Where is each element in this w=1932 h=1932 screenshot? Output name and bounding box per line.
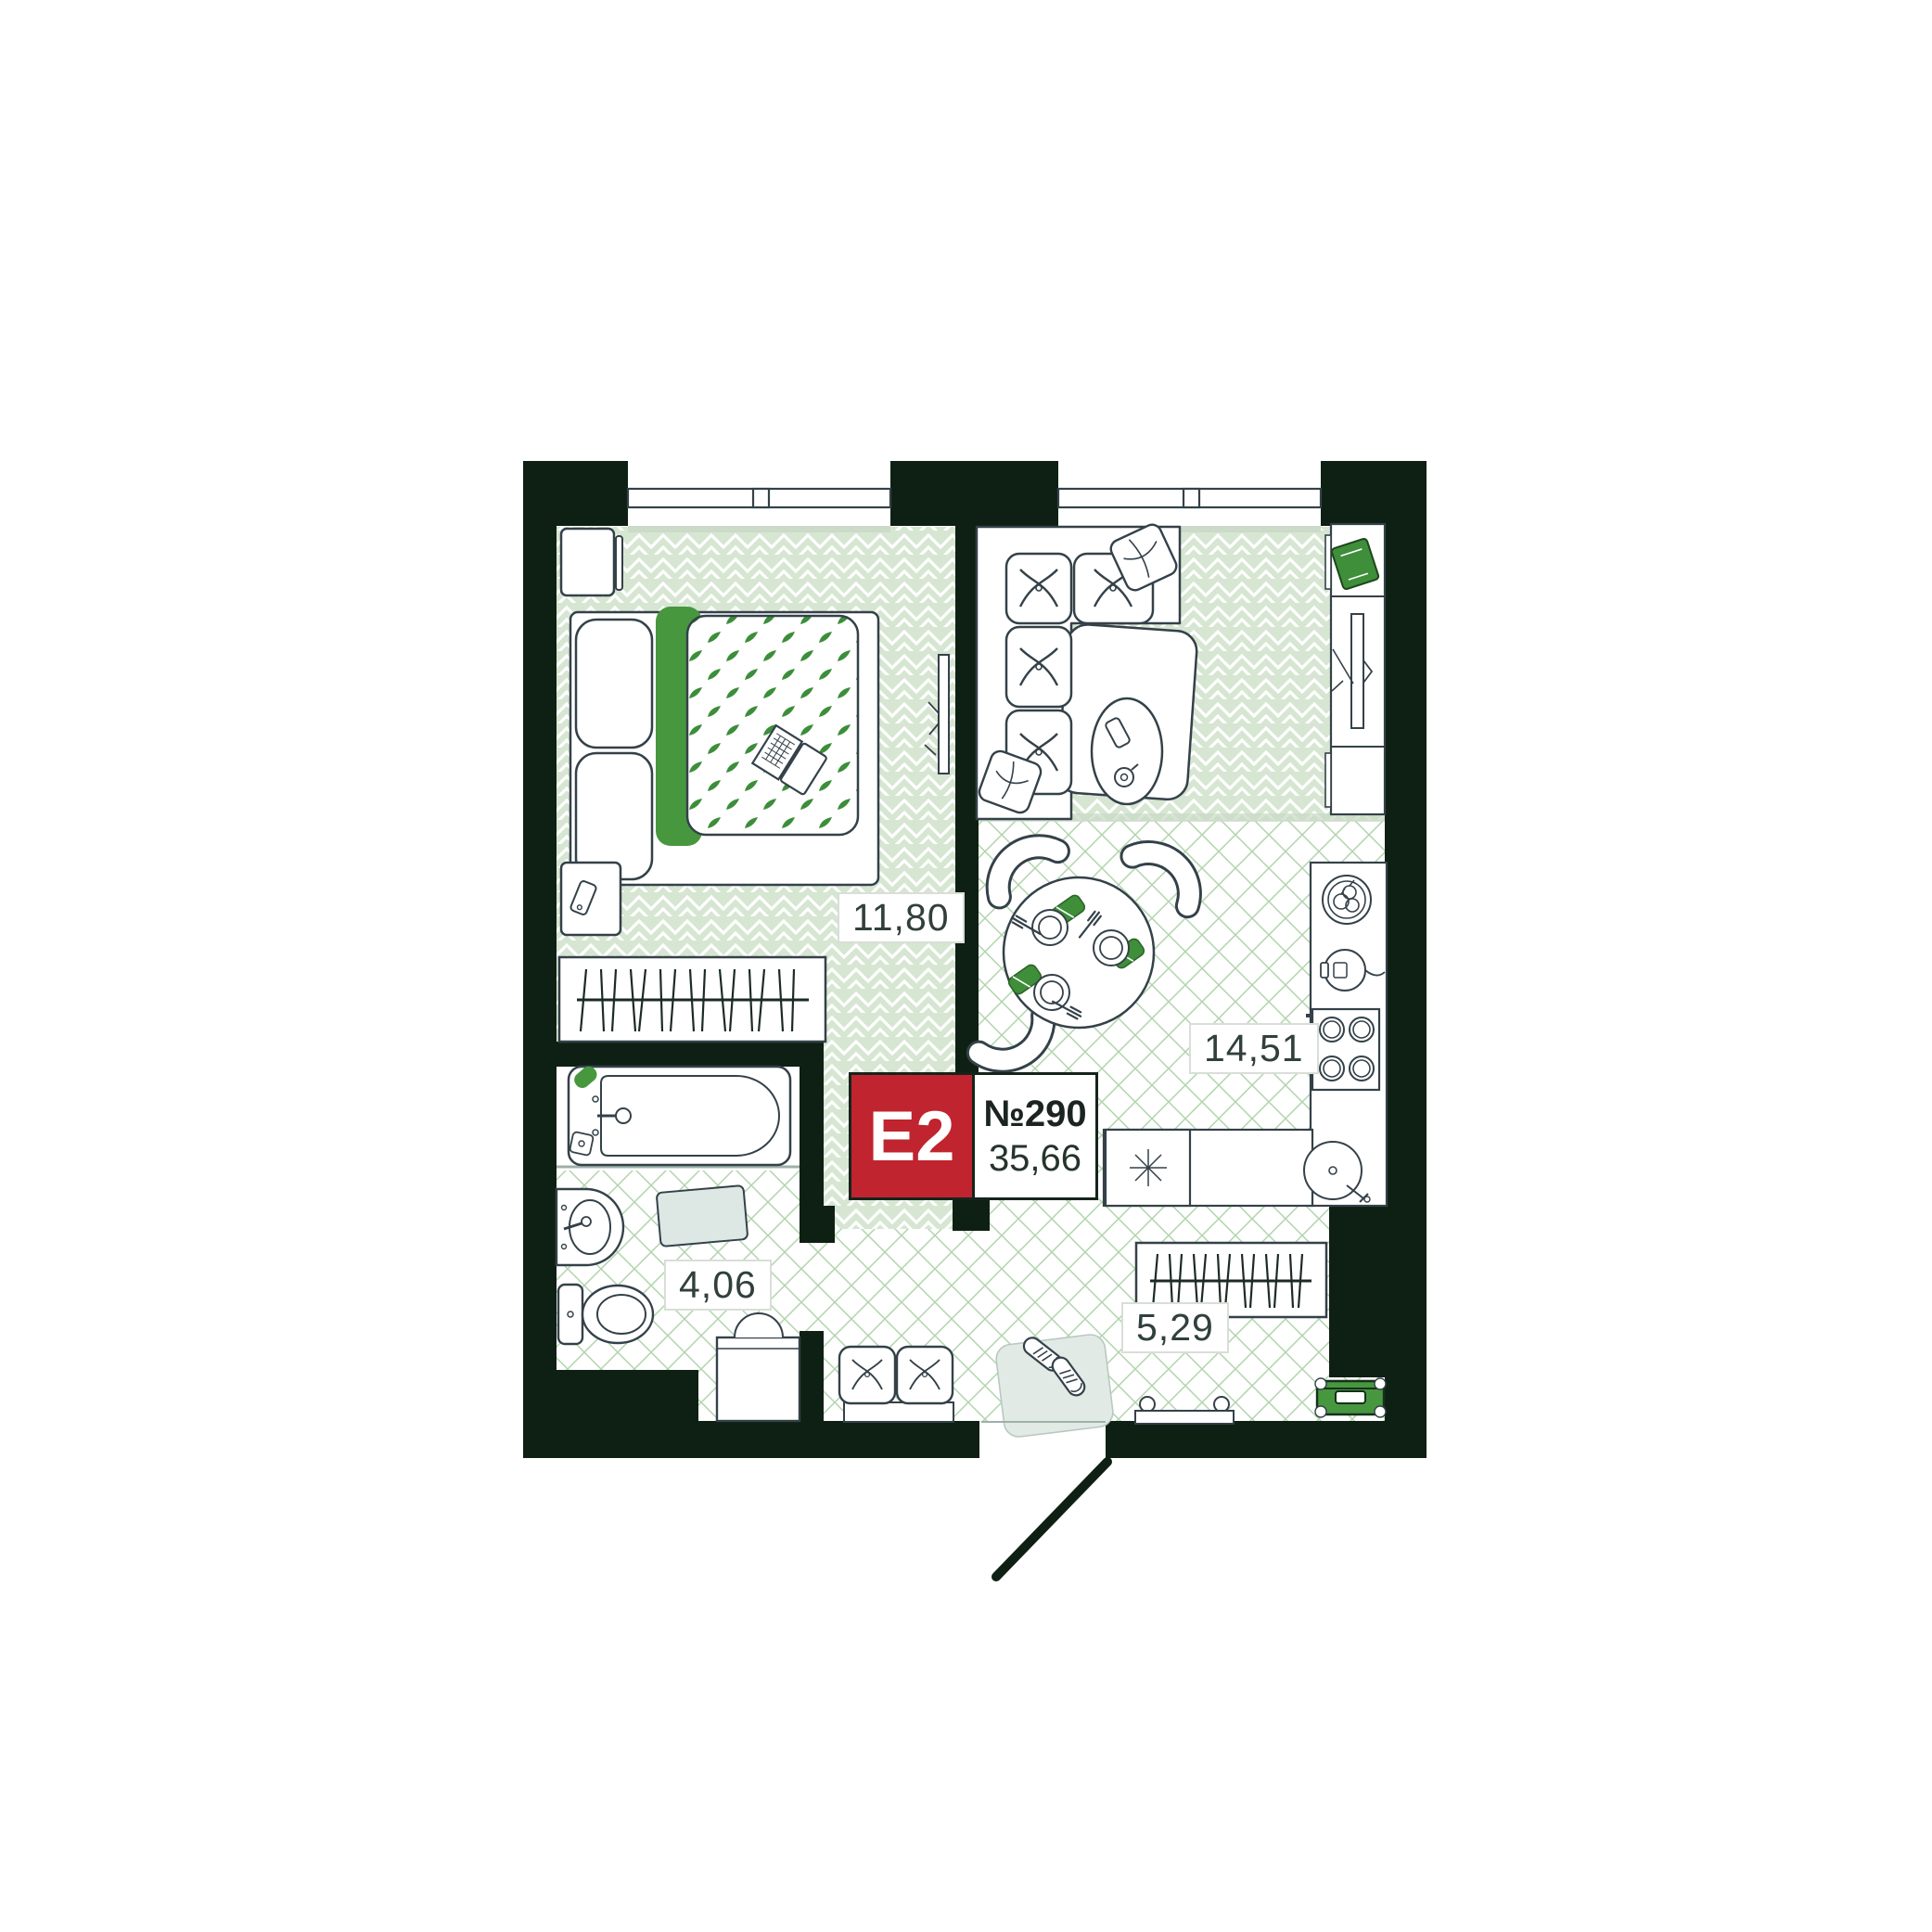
bedroom-wardrobe	[559, 957, 825, 1042]
console-handle	[1325, 535, 1331, 589]
bathtub	[569, 1064, 790, 1165]
fruit-plate	[1323, 876, 1371, 924]
entrance-door-swing	[996, 1462, 1107, 1577]
bed	[570, 607, 878, 885]
living-window-mullion	[1184, 489, 1199, 507]
washbasin	[557, 1189, 623, 1265]
dishwasher	[1106, 1130, 1190, 1206]
unit-total-area: 35,66	[989, 1136, 1081, 1181]
unit-badge: E2 №290 35,66	[849, 1072, 1098, 1200]
bath-mat	[657, 1185, 748, 1247]
leaf-blanket	[687, 616, 858, 835]
floor-plan-page: 11,80 14,51 4,06 5,29 E2 №290 35,66	[0, 0, 1932, 1932]
bedroom-window-shadow	[628, 526, 890, 532]
toilet	[558, 1285, 653, 1344]
unit-number: №290	[983, 1092, 1086, 1136]
floor-plan-canvas	[0, 0, 1932, 1932]
nightstand	[561, 529, 614, 595]
kitchen-living-area-label: 14,51	[1189, 1023, 1319, 1074]
wall-right-lower-block	[1329, 1206, 1427, 1377]
tv-console	[1325, 524, 1385, 814]
wall-bathroom-bottom	[523, 1370, 698, 1424]
unit-info: №290 35,66	[972, 1075, 1095, 1197]
bath-accessory	[569, 1132, 594, 1156]
console-handle	[1325, 753, 1331, 807]
hallway-area-label: 5,29	[1121, 1302, 1229, 1353]
corner-sofa	[977, 521, 1198, 819]
plate	[1034, 975, 1069, 1010]
bedroom-area-label: 11,80	[838, 892, 965, 943]
pillow	[576, 620, 652, 748]
unit-type-badge: E2	[851, 1075, 972, 1197]
bedroom-window-mullion	[753, 489, 769, 507]
pouf	[839, 1347, 953, 1422]
faucet	[616, 1108, 631, 1123]
plate	[1094, 930, 1129, 966]
green-suitcase	[1315, 1378, 1386, 1417]
bedside-table	[561, 863, 621, 935]
nightstand-side	[616, 536, 622, 590]
coffee-table	[1092, 698, 1162, 804]
wall-left	[523, 461, 557, 1458]
pillow	[576, 753, 652, 879]
wall-bottom-right	[1106, 1421, 1427, 1458]
wall-bedroom-bathroom	[523, 1042, 824, 1067]
plate	[1032, 910, 1068, 945]
wall-bedroom-kitchen-foot	[953, 1196, 990, 1231]
wall-bathroom-stub	[800, 1331, 824, 1424]
wall-bottom-left	[523, 1421, 979, 1458]
wall-bathroom-right-foot	[800, 1206, 835, 1243]
bathroom-area-label: 4,06	[664, 1260, 772, 1311]
